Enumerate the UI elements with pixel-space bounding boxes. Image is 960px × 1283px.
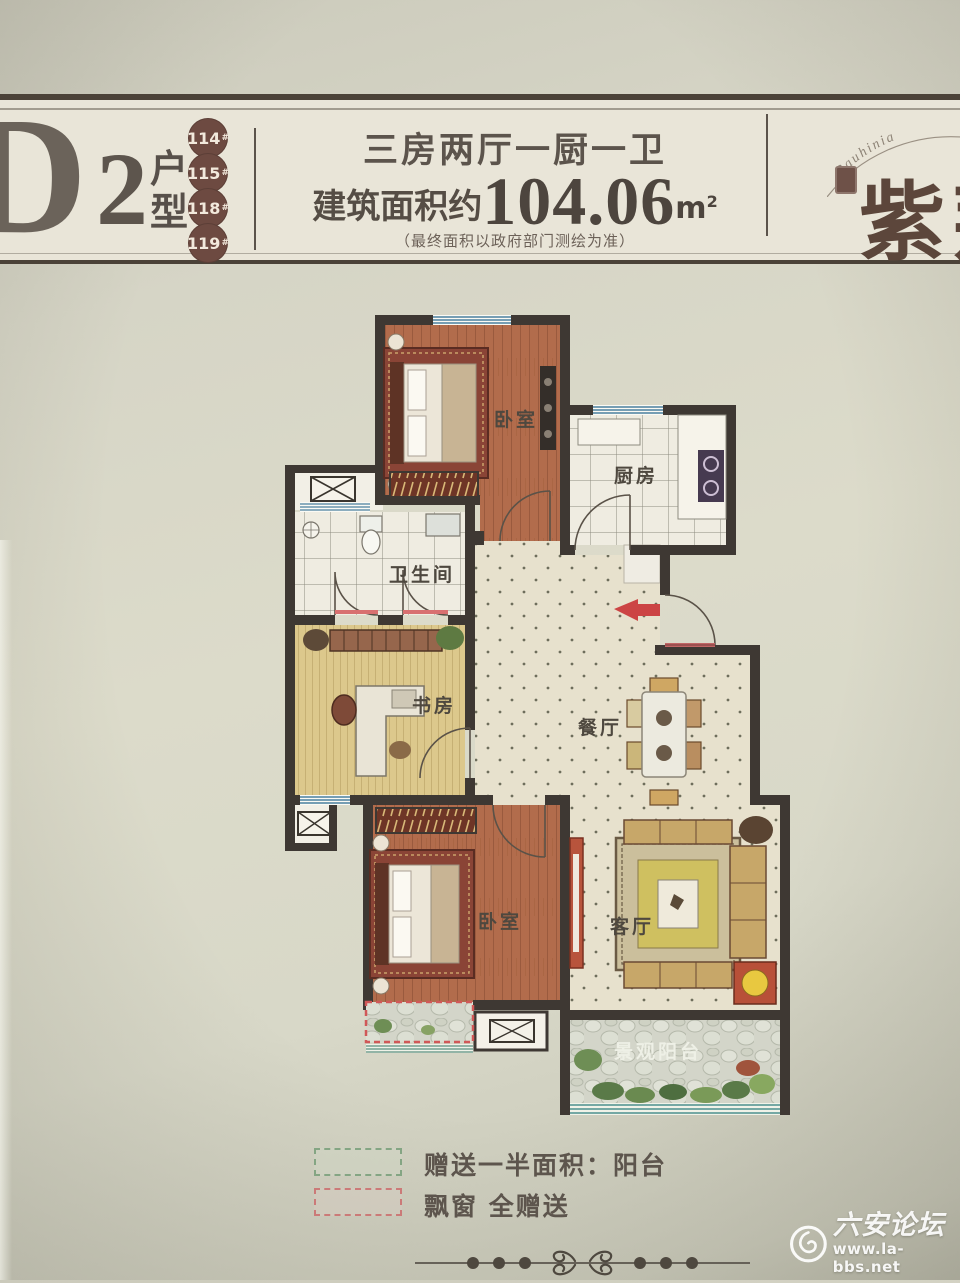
area-value: 104.06 <box>482 163 675 239</box>
unit-number: 2 <box>96 138 148 242</box>
building-badge: 119# <box>188 223 228 263</box>
room-label-bedroom-top: 卧室 <box>494 408 538 431</box>
legend-label-balcony: 赠送一半面积：阳台 <box>424 1146 667 1182</box>
area-unit: m2 <box>675 191 717 226</box>
area-disclaimer: （最终面积以政府部门测绘为准） <box>268 230 762 251</box>
decorative-flourish <box>415 1243 750 1283</box>
badge-suffix: # <box>221 238 229 248</box>
legend-swatch-balcony <box>314 1148 402 1176</box>
room-label-balcony: 景观阳台 <box>614 1040 702 1063</box>
balcony-window-band <box>570 1103 780 1115</box>
flue-shaft-top <box>295 473 383 512</box>
window <box>433 315 511 325</box>
header-band: D 2 户型 114# 115# 118# 119# 三房两厅一厨一卫 建筑面积… <box>0 94 960 264</box>
room-label-bathroom: 卫生间 <box>389 563 455 586</box>
watermark-site-name: 六安论坛 <box>833 1212 956 1239</box>
bathroom-window <box>300 502 370 512</box>
area-unit-m: m <box>675 191 706 226</box>
room-label-kitchen: 厨房 <box>614 464 658 487</box>
page-edge-highlight <box>0 540 12 1280</box>
window <box>300 795 350 805</box>
badge-number: 114 <box>187 129 220 148</box>
room-label-bedroom-bottom: 卧室 <box>478 910 522 933</box>
window <box>593 405 663 415</box>
building-badges: 114# 115# 118# 119# <box>188 118 228 258</box>
brand-name: 紫荆 <box>859 152 960 266</box>
area-unit-sup: 2 <box>707 192 718 211</box>
floorplan: 卧室 厨房 卫生间 书房 餐厅 卧室 客厅 景观阳台 <box>278 298 802 1122</box>
room-label-study: 书房 <box>412 694 456 717</box>
badge-number: 115 <box>187 164 220 183</box>
badge-suffix: # <box>221 203 229 213</box>
unit-letter: D <box>0 92 87 260</box>
legend-label-baywindow: 飘窗 全赠送 <box>424 1187 570 1223</box>
badge-number: 118 <box>187 199 220 218</box>
entrance-door <box>665 595 715 645</box>
badge-number: 119 <box>187 234 220 253</box>
building-badge: 115# <box>188 153 228 193</box>
header-center: 三房两厅一厨一卫 建筑面积约104.06m2 （最终面积以政府部门测绘为准） <box>268 122 762 251</box>
header-divider <box>766 114 768 236</box>
flue-shaft-bottom <box>475 1012 547 1050</box>
room-label-dining: 餐厅 <box>578 716 622 739</box>
forum-logo-icon <box>788 1221 829 1267</box>
room-label-living: 客厅 <box>610 915 654 938</box>
watermark: 六安论坛 www.la-bbs.net <box>788 1212 956 1276</box>
badge-suffix: # <box>221 168 229 178</box>
brand-block: Bauhinia 紫荆 <box>775 100 960 266</box>
bay-window <box>366 1002 473 1053</box>
brand-seal-icon <box>835 166 857 194</box>
badge-suffix: # <box>221 133 229 143</box>
building-badge: 114# <box>188 118 228 158</box>
area-prefix: 建筑面积约 <box>312 187 482 227</box>
building-badge: 118# <box>188 188 228 228</box>
header-divider <box>254 128 256 250</box>
area-line: 建筑面积约104.06m2 <box>268 171 762 232</box>
watermark-site-url: www.la-bbs.net <box>833 1240 956 1276</box>
legend-swatch-baywindow <box>314 1188 402 1216</box>
